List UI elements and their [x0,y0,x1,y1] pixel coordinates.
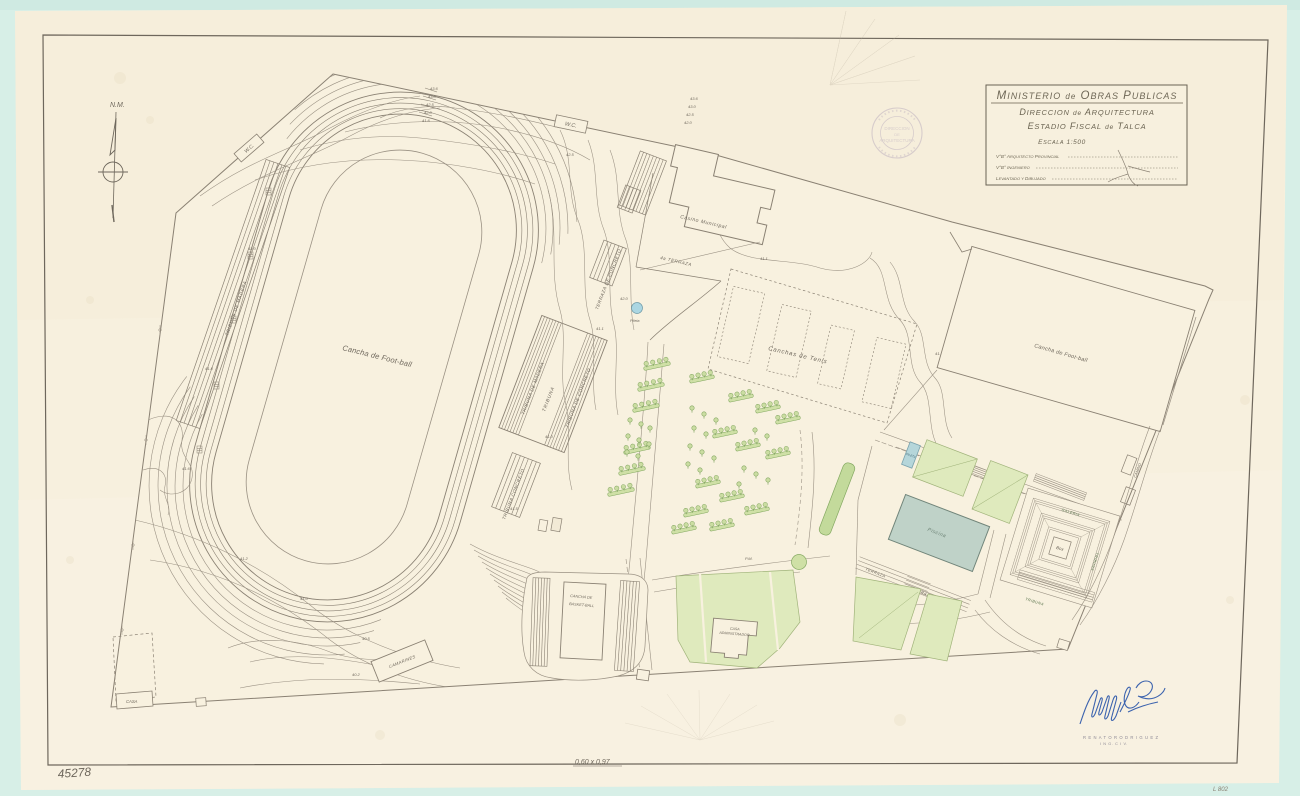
svg-text:43.6: 43.6 [430,86,439,91]
svg-text:R E N A T O R O D R I G U E Z: R E N A T O R O D R I G U E Z [1083,735,1159,740]
svg-text:V°B° INGENIERO: V°B° INGENIERO [996,165,1030,170]
svg-text:41.6: 41.6 [182,466,191,471]
svg-text:42.0: 42.0 [424,110,433,115]
svg-text:42.5: 42.5 [686,112,695,117]
svg-text:0,60 x 0,97: 0,60 x 0,97 [575,759,611,766]
svg-text:42.0: 42.0 [248,246,257,251]
svg-text:P.M.: P.M. [745,556,753,561]
svg-text:41.1: 41.1 [760,256,768,261]
svg-text:40.5: 40.5 [362,636,371,641]
svg-text:LEVANTADO Y DIBUJADO: LEVANTADO Y DIBUJADO [996,176,1046,181]
svg-text:ESTADIO FISCAL de TALCA: ESTADIO FISCAL de TALCA [1028,121,1147,131]
svg-text:ESCALA 1:500: ESCALA 1:500 [1038,139,1086,146]
svg-text:42.5: 42.5 [566,152,575,157]
svg-text:41.5: 41.5 [510,506,519,511]
svg-text:42.0: 42.0 [620,296,629,301]
svg-text:41.8: 41.8 [205,366,214,371]
svg-text:41.1: 41.1 [596,326,604,331]
svg-text:MINISTERIO de OBRAS PUBLICAS: MINISTERIO de OBRAS PUBLICAS [997,90,1178,102]
svg-text:43.0: 43.0 [688,104,697,109]
svg-text:DIRECCION: DIRECCION [884,126,909,131]
svg-text:41.6: 41.6 [422,118,431,123]
svg-text:45278: 45278 [57,765,92,781]
svg-text:Pileta: Pileta [630,319,640,323]
svg-text:DE: DE [894,132,900,137]
svg-text:N.M.: N.M. [110,102,125,109]
svg-text:42.5: 42.5 [426,102,435,107]
svg-text:DIRECCION de ARQUITECTURA: DIRECCION de ARQUITECTURA [1019,107,1154,117]
svg-text:ARQUITECTURA: ARQUITECTURA [879,138,915,143]
svg-text:41.2: 41.2 [240,556,249,561]
svg-text:CASA: CASA [126,699,138,704]
svg-text:43.0: 43.0 [428,94,437,99]
svg-text:43.6: 43.6 [690,96,699,101]
svg-text:41.0: 41.0 [545,434,554,439]
svg-text:I N G. C I V.: I N G. C I V. [1100,742,1128,746]
svg-text:42.0: 42.0 [684,120,693,125]
svg-text:V°B° ARQUITECTO PROVINCIAL: V°B° ARQUITECTO PROVINCIAL [996,154,1059,159]
svg-text:40.2: 40.2 [352,672,361,677]
svg-text:41.0: 41.0 [300,596,309,601]
svg-text:L 802: L 802 [1213,787,1229,793]
